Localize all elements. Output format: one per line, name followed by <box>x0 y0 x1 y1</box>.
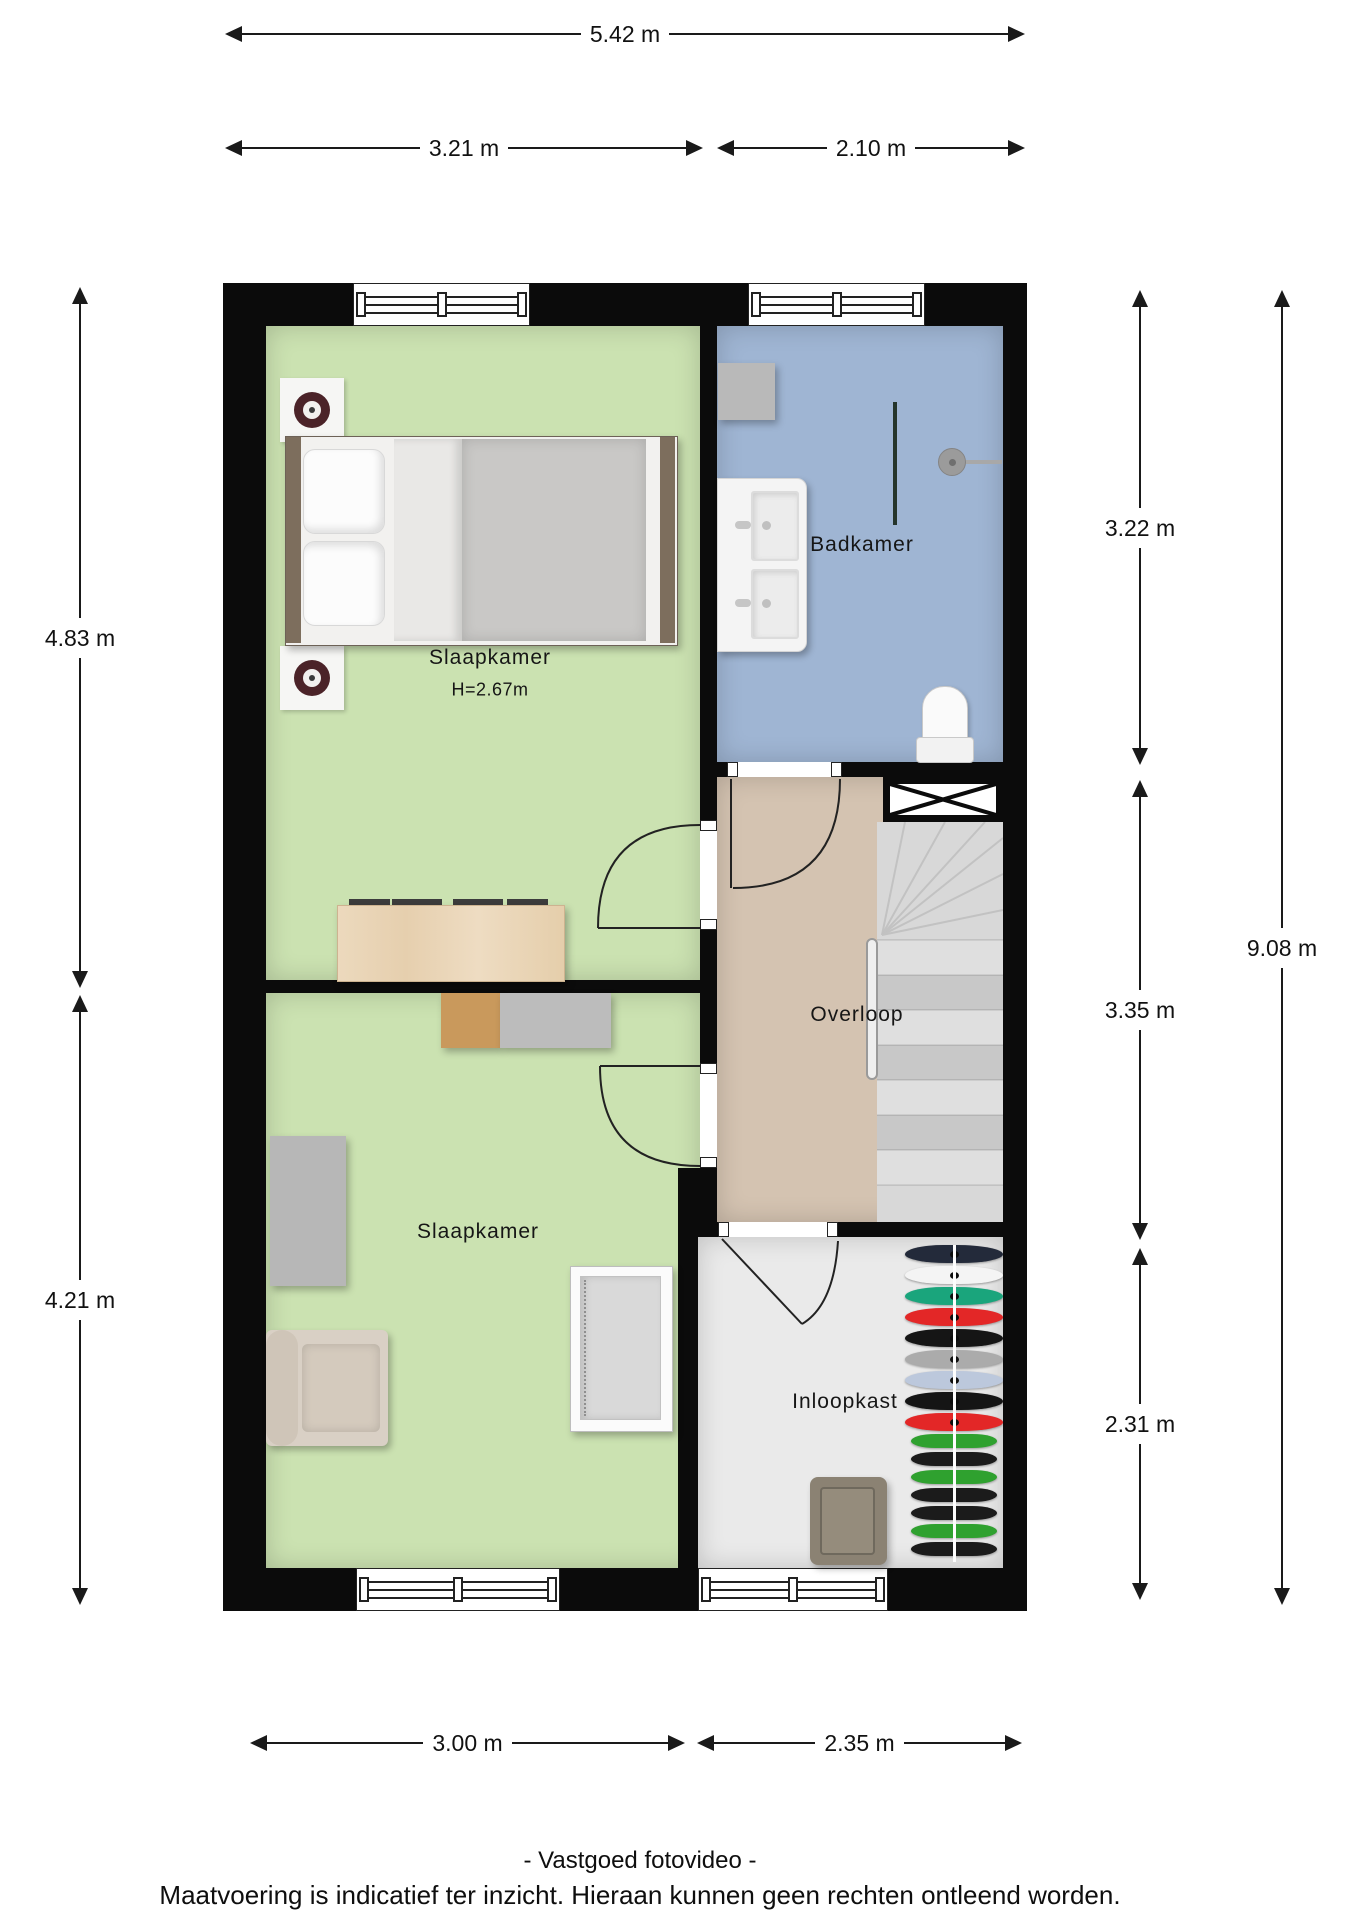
dim-label: 5.42 m <box>581 21 669 47</box>
tap-icon <box>735 599 751 607</box>
pillow <box>303 449 385 534</box>
bench <box>810 1477 887 1565</box>
dim-label: 4.21 m <box>43 1280 117 1320</box>
wall-right <box>1003 283 1027 1611</box>
dim-label: 2.10 m <box>827 135 915 161</box>
room-label-walk-in-closet: Inloopkast <box>792 1390 898 1414</box>
room-label-bedroom-second: Slaapkamer <box>417 1220 539 1244</box>
room-ceiling-height: H=2.67m <box>451 680 528 701</box>
shower-arm <box>960 460 1002 464</box>
wall-bottom <box>223 1568 1027 1611</box>
dim-label: 3.22 m <box>1103 508 1177 548</box>
dim-label: 9.08 m <box>1245 928 1319 968</box>
void-shaft <box>883 777 1003 822</box>
door-opening-closet <box>718 1222 838 1237</box>
bathroom-cabinet <box>718 363 775 420</box>
footboard <box>660 437 675 643</box>
drain-dot <box>762 521 771 530</box>
floorplan-page: Slaapkamer H=2.67m Badkamer Overloop Sla… <box>0 0 1358 1920</box>
wardrobe <box>270 1136 346 1286</box>
window-bedroom-second <box>356 1568 560 1611</box>
double-bed <box>285 436 678 646</box>
dim-right-landing-height: 3.35 m <box>1095 780 1185 1240</box>
window-closet <box>698 1568 888 1611</box>
drain-dot <box>762 599 771 608</box>
clothes-rack <box>903 1245 1005 1562</box>
armchair-seat <box>302 1344 380 1432</box>
dim-label: 2.31 m <box>1103 1404 1177 1444</box>
dim-left-lower-height: 4.21 m <box>35 995 125 1605</box>
armchair-back <box>266 1330 298 1446</box>
armchair <box>266 1330 388 1446</box>
sink-basin <box>751 491 799 561</box>
pillow <box>303 541 385 626</box>
dim-label: 4.83 m <box>43 618 117 658</box>
wall-left <box>223 283 266 1611</box>
tap-icon <box>735 521 751 529</box>
dim-top-left-width: 3.21 m <box>225 136 703 160</box>
single-bed <box>570 1266 673 1432</box>
dim-label: 3.21 m <box>420 135 508 161</box>
dim-right-closet-height: 2.31 m <box>1095 1248 1185 1600</box>
dim-label: 3.35 m <box>1103 990 1177 1030</box>
mattress <box>580 1276 661 1420</box>
dim-right-bathroom-height: 3.22 m <box>1095 290 1185 765</box>
dim-label: 3.00 m <box>423 1730 511 1756</box>
footer-disclaimer: Maatvoering is indicatief ter inzicht. H… <box>159 1880 1120 1911</box>
double-sink-vanity <box>717 478 807 652</box>
duvet <box>462 439 646 641</box>
shower-head-icon <box>938 448 966 476</box>
dim-top-right-width: 2.10 m <box>717 136 1025 160</box>
room-label-bedroom-main: Slaapkamer <box>429 646 551 670</box>
window-bathroom <box>748 283 925 326</box>
dresser-wood <box>441 993 500 1048</box>
desk <box>337 905 565 982</box>
headboard <box>286 437 301 643</box>
dim-bottom-left-width: 3.00 m <box>250 1731 685 1755</box>
shower-screen <box>893 402 897 525</box>
mattress-stitching <box>584 1280 586 1416</box>
duvet-fold <box>394 439 462 641</box>
dim-total-height: 9.08 m <box>1237 290 1327 1605</box>
door-opening-bedroom-second <box>700 1063 717 1168</box>
dim-total-width: 5.42 m <box>225 22 1025 46</box>
speaker-icon-dot <box>309 407 315 413</box>
room-label-bathroom: Badkamer <box>810 533 914 557</box>
sink-basin <box>751 569 799 639</box>
dim-bottom-right-width: 2.35 m <box>697 1731 1022 1755</box>
toilet-tank <box>916 737 974 763</box>
closet-rod <box>953 1245 956 1562</box>
speaker-icon-dot <box>309 675 315 681</box>
door-opening-bathroom <box>727 762 842 777</box>
room-label-landing: Overloop <box>810 1003 903 1027</box>
dim-left-upper-height: 4.83 m <box>35 287 125 988</box>
window-bedroom-main <box>353 283 530 326</box>
dresser-gray <box>500 993 611 1048</box>
footer-branding: - Vastgoed fotovideo - <box>523 1847 756 1875</box>
door-opening-bedroom-main <box>700 820 717 930</box>
dim-label: 2.35 m <box>815 1730 903 1756</box>
